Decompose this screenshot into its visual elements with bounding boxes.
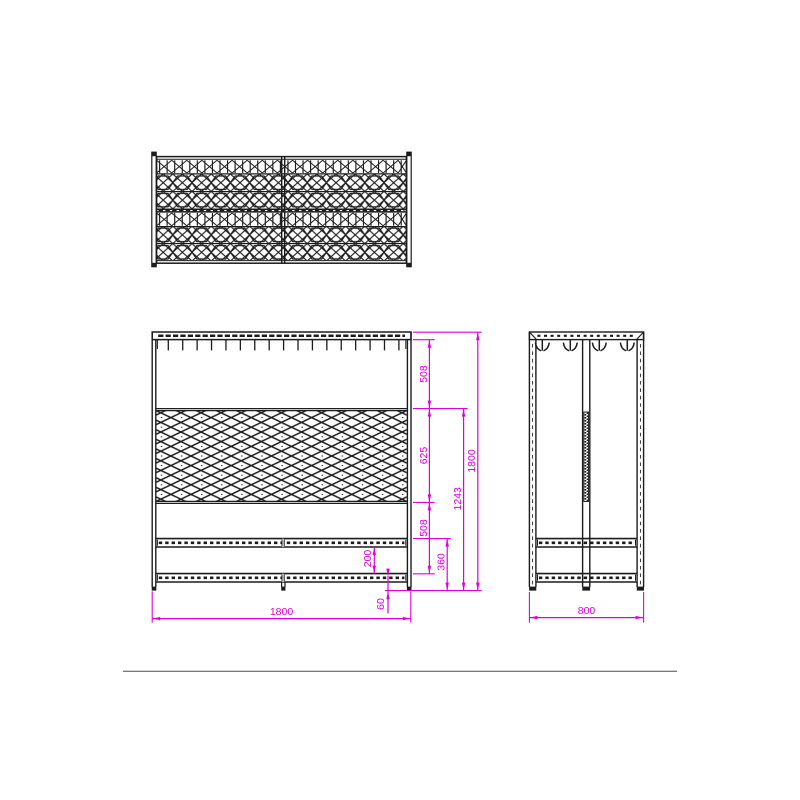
svg-text:625: 625 bbox=[418, 447, 430, 465]
svg-text:60: 60 bbox=[375, 598, 387, 610]
svg-text:508: 508 bbox=[418, 519, 430, 537]
svg-text:1243: 1243 bbox=[452, 487, 464, 511]
svg-text:360: 360 bbox=[435, 553, 447, 571]
svg-text:1800: 1800 bbox=[466, 449, 478, 473]
svg-text:508: 508 bbox=[418, 365, 430, 383]
svg-text:200: 200 bbox=[362, 550, 374, 568]
svg-text:800: 800 bbox=[578, 605, 596, 617]
svg-text:1800: 1800 bbox=[270, 606, 294, 618]
